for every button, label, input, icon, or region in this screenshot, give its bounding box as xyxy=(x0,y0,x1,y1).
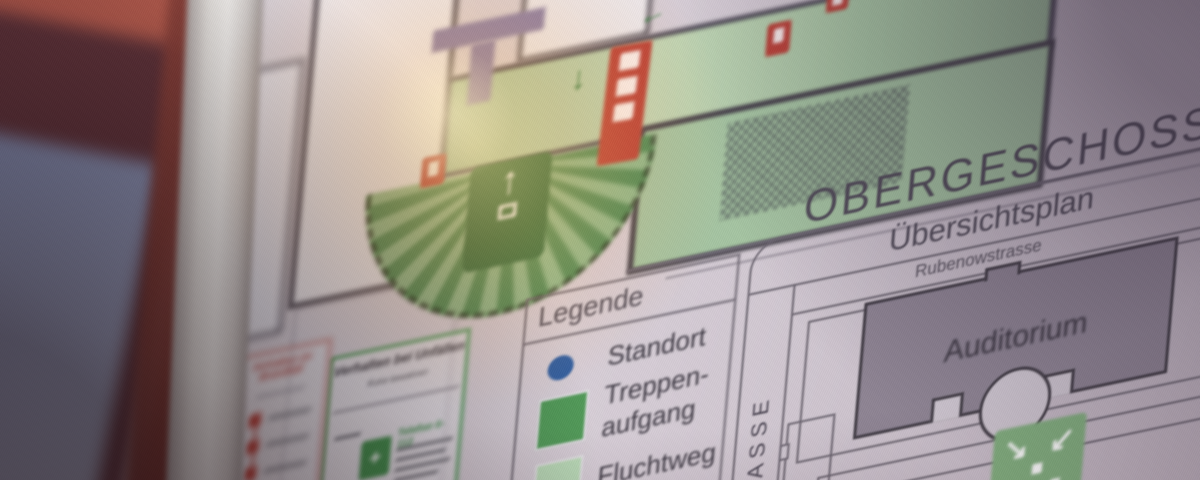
photo-of-evacuation-plan: ↑ ↓ ← OBERGESCHOSS Übersichtsplan Rubeno… xyxy=(0,0,1200,480)
vignette xyxy=(0,0,1200,480)
